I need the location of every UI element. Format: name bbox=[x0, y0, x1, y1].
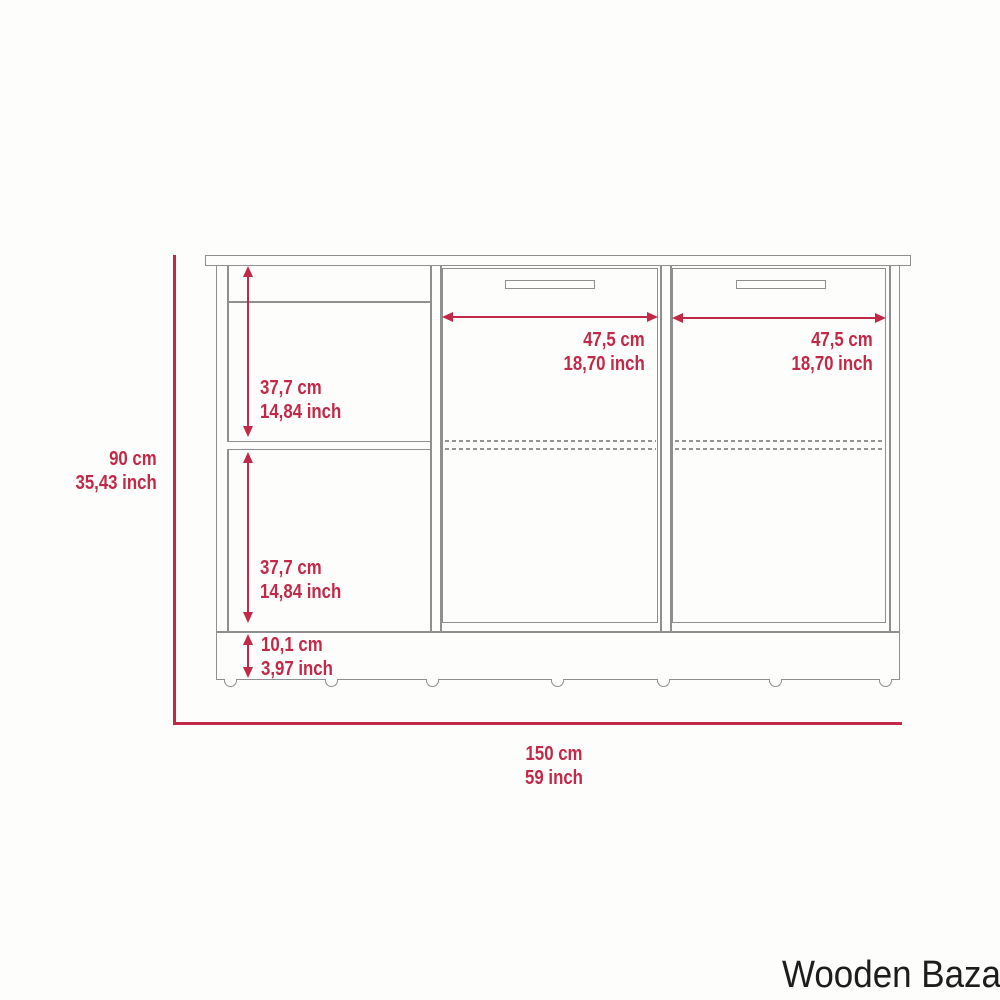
divider-left-line bbox=[430, 266, 432, 631]
arrow-shaft bbox=[247, 463, 250, 612]
lower-shelf-cm: 37,7 cm bbox=[260, 556, 341, 580]
upper-shelf-cm: 37,7 cm bbox=[260, 376, 341, 400]
cabinet-foot bbox=[657, 679, 670, 687]
cabinet-foot bbox=[426, 679, 439, 687]
cabinet-foot bbox=[551, 679, 564, 687]
right-door-inch: 18,70 inch bbox=[792, 352, 873, 376]
arrow-left-icon bbox=[442, 312, 453, 322]
lower-shelf-inch: 14,84 inch bbox=[260, 580, 341, 604]
arrow-up-icon bbox=[243, 634, 253, 645]
base-height-label: 10,1 cm 3,97 inch bbox=[261, 633, 333, 681]
right-door-handle bbox=[736, 280, 826, 289]
middle-door-inch: 18,70 inch bbox=[564, 352, 645, 376]
base-inch: 3,97 inch bbox=[261, 657, 333, 681]
overall-height-label: 90 cm 35,43 inch bbox=[76, 447, 157, 495]
arrow-shaft bbox=[683, 317, 875, 320]
arrow-shaft bbox=[247, 277, 250, 426]
right-door-dashed-line-2 bbox=[675, 448, 884, 450]
upper-shelf-inch: 14,84 inch bbox=[260, 400, 341, 424]
left-section-middle-shelf bbox=[227, 441, 431, 450]
cabinet-foot bbox=[879, 679, 892, 687]
dimension-diagram: 90 cm 35,43 inch 37,7 cm 14,84 inch 37,7… bbox=[0, 0, 1000, 1000]
upper-shelf-height-label: 37,7 cm 14,84 inch bbox=[260, 376, 341, 424]
base-cm: 10,1 cm bbox=[261, 633, 333, 657]
right-door-width-arrow bbox=[672, 312, 886, 324]
overall-height-cm: 90 cm bbox=[76, 447, 157, 471]
base-height-arrow bbox=[242, 634, 254, 678]
arrow-shaft bbox=[453, 316, 647, 319]
middle-door-dashed-line-1 bbox=[445, 440, 656, 442]
arrow-shaft bbox=[247, 645, 250, 667]
middle-door-width-label: 47,5 cm 18,70 inch bbox=[564, 328, 645, 376]
overall-height-extension-line bbox=[173, 255, 176, 724]
overall-height-inch: 35,43 inch bbox=[76, 471, 157, 495]
cabinet-foot bbox=[769, 679, 782, 687]
arrow-left-icon bbox=[672, 313, 683, 323]
cabinet-foot bbox=[224, 679, 237, 687]
arrow-down-icon bbox=[243, 612, 253, 623]
right-side-panel-line bbox=[889, 266, 891, 631]
overall-width-extension-line bbox=[173, 722, 902, 725]
overall-width-inch: 59 inch bbox=[470, 766, 638, 790]
lower-shelf-height-arrow bbox=[242, 452, 254, 623]
overall-width-label: 150 cm 59 inch bbox=[470, 742, 638, 790]
divider-mid-line bbox=[660, 266, 662, 631]
upper-shelf-height-arrow bbox=[242, 266, 254, 437]
middle-door-dashed-line-2 bbox=[445, 448, 656, 450]
middle-door-handle bbox=[505, 280, 595, 289]
lower-shelf-height-label: 37,7 cm 14,84 inch bbox=[260, 556, 341, 604]
right-door-dashed-line-1 bbox=[675, 440, 884, 442]
right-door-width-label: 47,5 cm 18,70 inch bbox=[792, 328, 873, 376]
arrow-up-icon bbox=[243, 266, 253, 277]
arrow-right-icon bbox=[647, 312, 658, 322]
overall-width-cm: 150 cm bbox=[470, 742, 638, 766]
left-section-top-rail-line bbox=[227, 301, 431, 303]
right-door-cm: 47,5 cm bbox=[792, 328, 873, 352]
middle-door-width-arrow bbox=[442, 311, 658, 323]
arrow-right-icon bbox=[875, 313, 886, 323]
arrow-down-icon bbox=[243, 426, 253, 437]
arrow-down-icon bbox=[243, 667, 253, 678]
arrow-up-icon bbox=[243, 452, 253, 463]
brand-text: Wooden Bazar bbox=[782, 956, 1000, 994]
middle-door-cm: 47,5 cm bbox=[564, 328, 645, 352]
